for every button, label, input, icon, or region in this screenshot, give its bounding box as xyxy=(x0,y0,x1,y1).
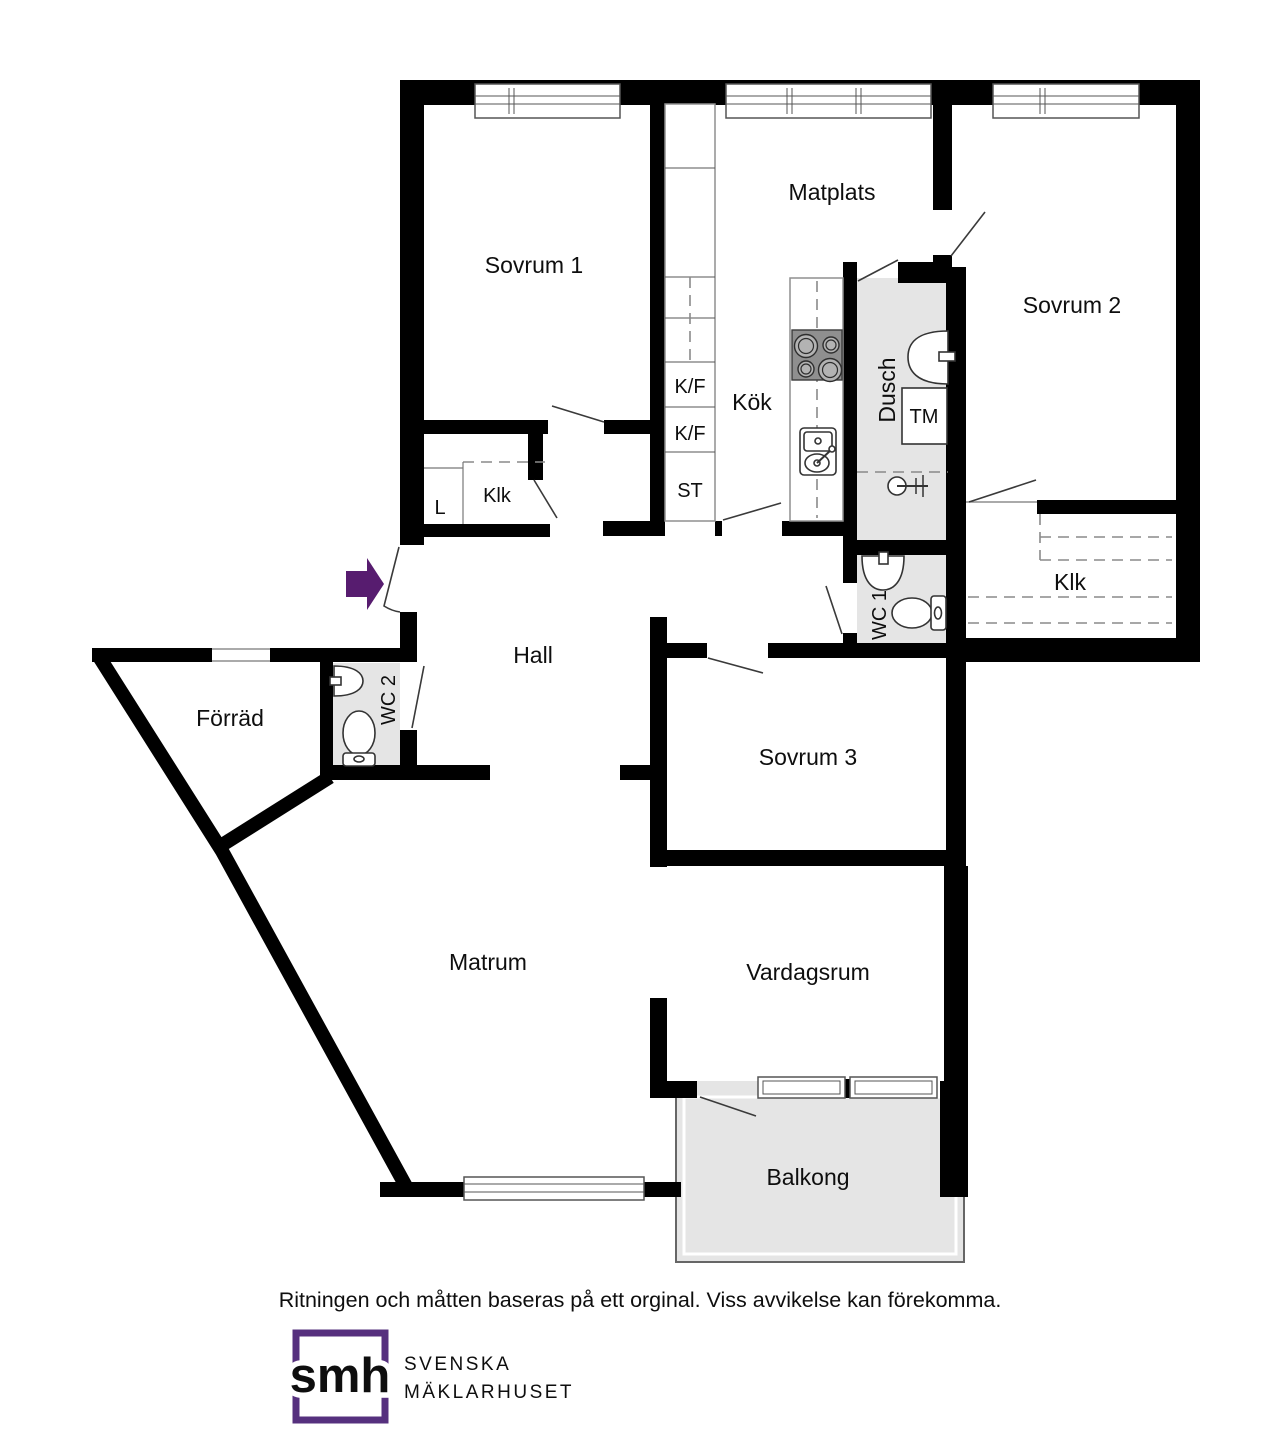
tap-icon xyxy=(939,352,955,361)
tap-icon xyxy=(330,677,341,685)
room-label-dusch: Dusch xyxy=(874,357,900,422)
window-sovrum1 xyxy=(475,84,620,118)
room-label-vardagsrum: Vardagsrum xyxy=(746,959,870,985)
room-label-hall: Hall xyxy=(513,642,553,668)
sovrum2-door-swing xyxy=(951,212,985,256)
label-l: L xyxy=(434,497,445,519)
dusch-door-swing xyxy=(858,260,898,281)
window-balcony-left xyxy=(758,1077,845,1098)
entrance-door-swing xyxy=(384,547,400,612)
room-label-sovrum1: Sovrum 1 xyxy=(485,252,583,278)
label-tm: TM xyxy=(910,406,939,428)
window-matrum xyxy=(464,1177,644,1200)
sovrum1-door-opening xyxy=(548,419,604,435)
tap-icon xyxy=(879,552,888,564)
kitchen-sink-icon xyxy=(800,428,836,475)
floorplan-svg: Sovrum 1 Matplats Sovrum 2 Kök Dusch WC … xyxy=(0,0,1280,1456)
entrance-arrow-icon xyxy=(346,558,384,610)
room-label-matrum: Matrum xyxy=(449,949,527,975)
room-label-balkong: Balkong xyxy=(766,1164,849,1190)
logo-monogram: smh xyxy=(290,1349,391,1403)
window-balcony-right xyxy=(850,1077,937,1098)
label-st: ST xyxy=(677,480,703,502)
room-label-forrad: Förräd xyxy=(196,705,264,731)
klk-door-swing xyxy=(534,480,557,518)
room-label-kok: Kök xyxy=(732,389,772,415)
toilet-icon xyxy=(343,711,375,766)
room-label-matplats: Matplats xyxy=(789,179,876,205)
sovrum3-door-swing xyxy=(708,658,763,673)
room-label-klk-right: Klk xyxy=(1054,569,1086,595)
balcony-door-floor xyxy=(697,1081,758,1098)
logo-name-line2: MÄKLARHUSET xyxy=(404,1382,574,1403)
label-kf-1: K/F xyxy=(674,376,705,398)
agency-logo: smh SVENSKA MÄKLARHUSET xyxy=(290,1333,574,1420)
logo-name-line1: SVENSKA xyxy=(404,1354,511,1375)
wc2-door-swing xyxy=(412,666,424,728)
label-kf-2: K/F xyxy=(674,423,705,445)
room-label-sovrum2: Sovrum 2 xyxy=(1023,292,1121,318)
stove-icon xyxy=(792,330,842,382)
disclaimer-text: Ritningen och måtten baseras på ett orgi… xyxy=(279,1288,1002,1312)
klk2-door-swing xyxy=(969,480,1036,502)
room-label-wc1: WC 1 xyxy=(869,590,891,640)
room-label-klk-left: Klk xyxy=(483,485,512,507)
wc1-door-swing xyxy=(826,586,842,634)
room-label-wc2: WC 2 xyxy=(378,675,400,725)
kok-door-swing xyxy=(723,503,781,520)
window-matplats xyxy=(726,84,931,118)
toilet-icon xyxy=(892,596,946,630)
room-label-sovrum3: Sovrum 3 xyxy=(759,744,857,770)
walls xyxy=(92,80,1200,1197)
cabinet-column xyxy=(665,104,715,521)
window-sovrum2 xyxy=(993,84,1139,118)
